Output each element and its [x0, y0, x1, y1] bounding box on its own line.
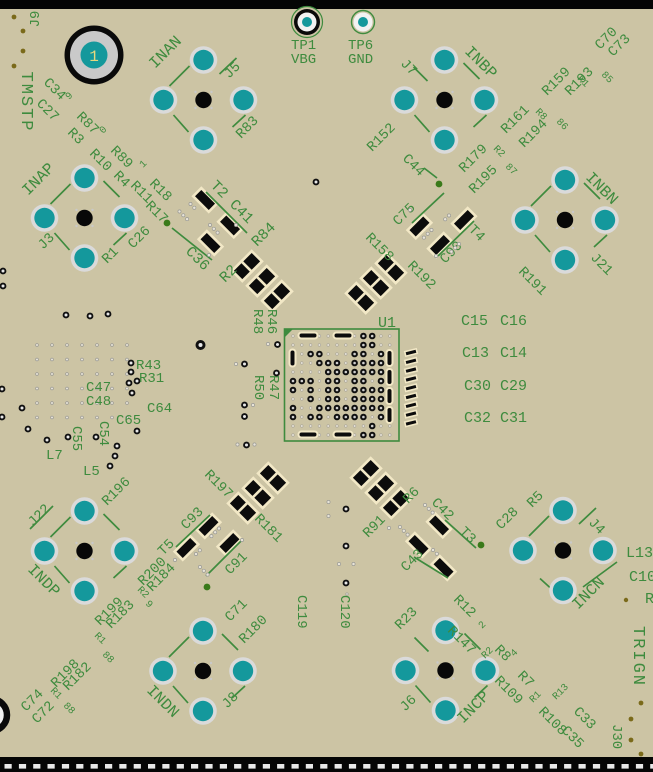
svg-text:C55: C55	[68, 426, 84, 451]
svg-text:1: 1	[89, 48, 99, 66]
svg-text:C29: C29	[500, 378, 527, 395]
svg-text:R31: R31	[139, 371, 164, 387]
svg-text:C30: C30	[464, 378, 491, 395]
svg-text:C120: C120	[336, 595, 352, 629]
svg-text:C15: C15	[461, 313, 488, 330]
svg-text:C16: C16	[500, 313, 527, 330]
svg-text:J9: J9	[28, 11, 44, 28]
svg-text:R48: R48	[249, 309, 265, 334]
svg-text:R1: R1	[645, 591, 653, 608]
svg-text:C13: C13	[462, 345, 489, 362]
svg-text:L7: L7	[46, 448, 63, 464]
svg-text:L5: L5	[83, 464, 100, 480]
svg-text:C32: C32	[464, 410, 491, 427]
svg-text:C64: C64	[147, 401, 172, 417]
svg-text:TRIGN: TRIGN	[628, 626, 647, 687]
svg-text:L13: L13	[626, 545, 653, 562]
svg-text:GND: GND	[348, 52, 373, 68]
svg-text:C119: C119	[293, 595, 309, 629]
svg-text:C10: C10	[629, 569, 653, 586]
svg-text:C14: C14	[500, 345, 527, 362]
svg-text:J30: J30	[608, 724, 624, 749]
svg-text:VBG: VBG	[291, 52, 316, 68]
svg-text:R46: R46	[263, 309, 279, 334]
svg-text:C31: C31	[500, 410, 527, 427]
svg-text:U1: U1	[378, 315, 396, 332]
svg-text:R50: R50	[250, 375, 266, 400]
svg-text:C48: C48	[86, 394, 111, 410]
svg-text:R47: R47	[265, 375, 281, 400]
svg-text:C65: C65	[116, 413, 141, 429]
svg-text:C54: C54	[95, 421, 111, 446]
svg-text:TMSTP: TMSTP	[16, 71, 35, 132]
